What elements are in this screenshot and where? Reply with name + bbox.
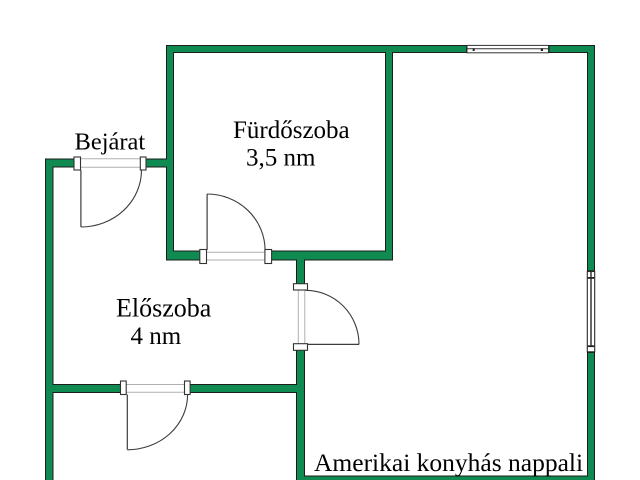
- svg-text:Bejárat: Bejárat: [75, 129, 146, 156]
- svg-text:Amerikai konyhás nappali: Amerikai konyhás nappali: [314, 448, 583, 477]
- svg-text:4 nm: 4 nm: [131, 323, 182, 350]
- svg-text:3,5 nm: 3,5 nm: [246, 145, 316, 172]
- svg-text:Fürdőszoba: Fürdőszoba: [233, 117, 350, 144]
- svg-text:Előszoba: Előszoba: [116, 294, 212, 323]
